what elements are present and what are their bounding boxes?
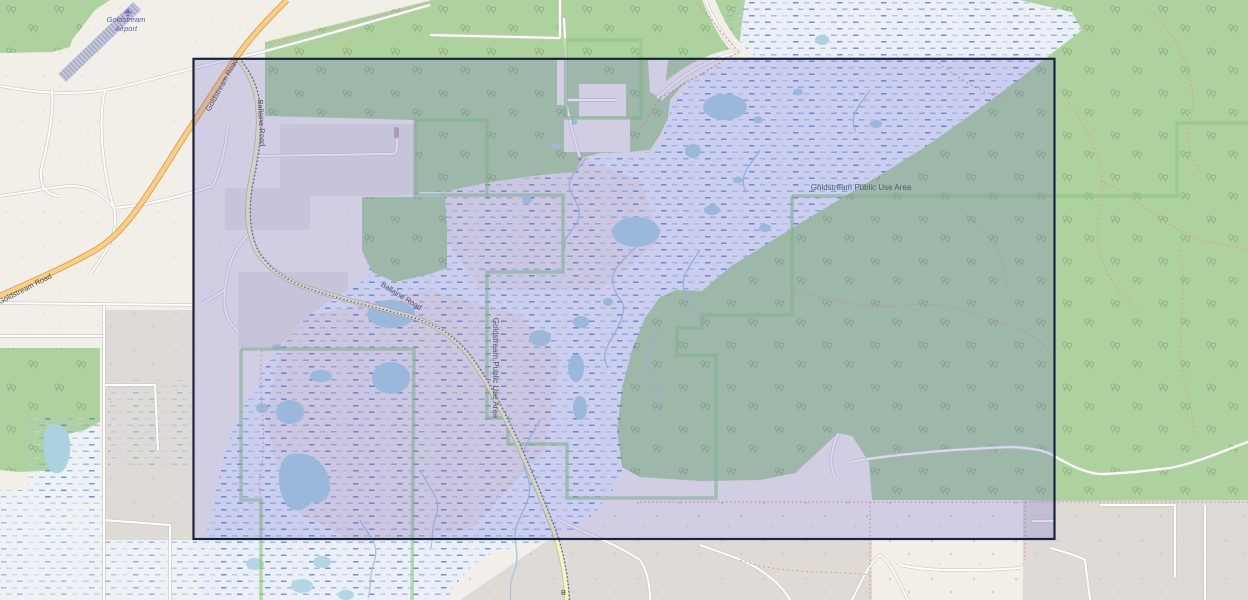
svg-text:B: B	[561, 588, 566, 597]
svg-text:Goldstream: Goldstream	[107, 15, 146, 24]
svg-text:Airport: Airport	[114, 24, 138, 33]
